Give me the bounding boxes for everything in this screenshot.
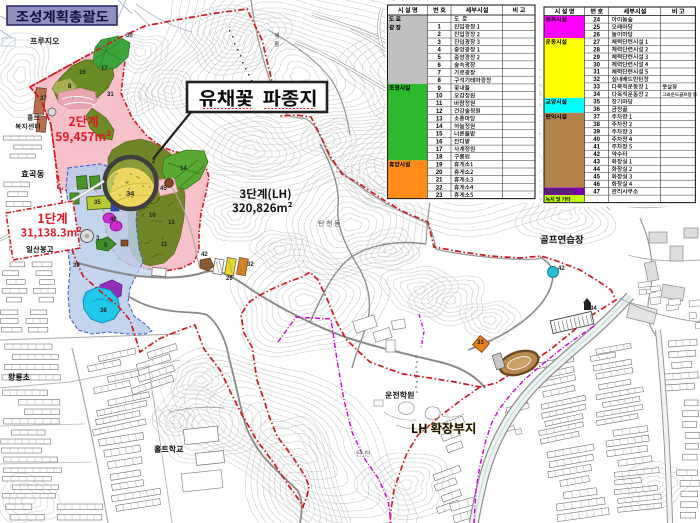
svg-text:24: 24 (593, 17, 600, 23)
svg-text:22: 22 (436, 185, 443, 191)
svg-text:32: 32 (247, 262, 254, 268)
svg-text:45: 45 (593, 175, 600, 181)
svg-text:37: 37 (593, 115, 600, 121)
svg-text:38: 38 (593, 122, 600, 128)
svg-text:17: 17 (101, 66, 108, 72)
svg-text:33: 33 (477, 340, 484, 346)
svg-text:18: 18 (436, 155, 443, 161)
svg-text:35: 35 (94, 200, 101, 206)
svg-text:38: 38 (100, 308, 107, 314)
svg-text:13: 13 (168, 220, 175, 226)
svg-text:35: 35 (593, 100, 600, 106)
svg-text:20: 20 (436, 170, 443, 176)
svg-text:11: 11 (436, 101, 443, 107)
svg-text:34: 34 (590, 306, 597, 312)
svg-text:30: 30 (593, 62, 600, 68)
svg-text:46: 46 (593, 182, 600, 188)
svg-text:45: 45 (160, 186, 167, 192)
svg-text:10: 10 (149, 213, 156, 219)
svg-text:19: 19 (436, 162, 443, 168)
svg-text:21: 21 (436, 178, 443, 184)
svg-text:42: 42 (201, 252, 208, 258)
svg-text:17: 17 (436, 147, 443, 153)
svg-text:31: 31 (107, 92, 114, 98)
svg-text:43: 43 (593, 160, 600, 166)
svg-text:42: 42 (558, 266, 565, 272)
svg-text:14: 14 (436, 124, 443, 130)
svg-text:26: 26 (226, 276, 233, 282)
svg-text:33: 33 (593, 85, 600, 91)
svg-text:34: 34 (593, 92, 600, 98)
svg-text:29: 29 (593, 55, 600, 61)
svg-text:37: 37 (40, 96, 47, 102)
svg-text:34: 34 (126, 189, 135, 198)
svg-text:10: 10 (436, 94, 443, 100)
svg-text:14: 14 (180, 166, 187, 172)
svg-text:28: 28 (593, 47, 600, 53)
svg-text:26: 26 (593, 32, 600, 38)
svg-text:16: 16 (436, 139, 443, 145)
svg-text:41: 41 (593, 145, 600, 151)
svg-text:39: 39 (593, 130, 600, 136)
svg-text:27: 27 (593, 40, 600, 46)
svg-text:32: 32 (593, 77, 600, 83)
svg-text:13: 13 (436, 116, 443, 122)
svg-text:12: 12 (436, 109, 443, 115)
svg-text:36: 36 (593, 107, 600, 113)
svg-text:31: 31 (593, 70, 600, 76)
svg-text:16: 16 (79, 70, 86, 76)
svg-text:44: 44 (593, 167, 600, 173)
svg-text:23: 23 (436, 193, 443, 199)
svg-text:25: 25 (593, 25, 600, 31)
svg-text:30: 30 (126, 33, 133, 39)
svg-text:40: 40 (110, 217, 117, 223)
svg-text:11: 11 (161, 242, 168, 248)
svg-text:15: 15 (436, 132, 443, 138)
svg-text:40: 40 (593, 137, 600, 143)
svg-text:42: 42 (593, 152, 600, 158)
svg-text:39: 39 (73, 263, 80, 269)
svg-text:47: 47 (593, 189, 600, 195)
